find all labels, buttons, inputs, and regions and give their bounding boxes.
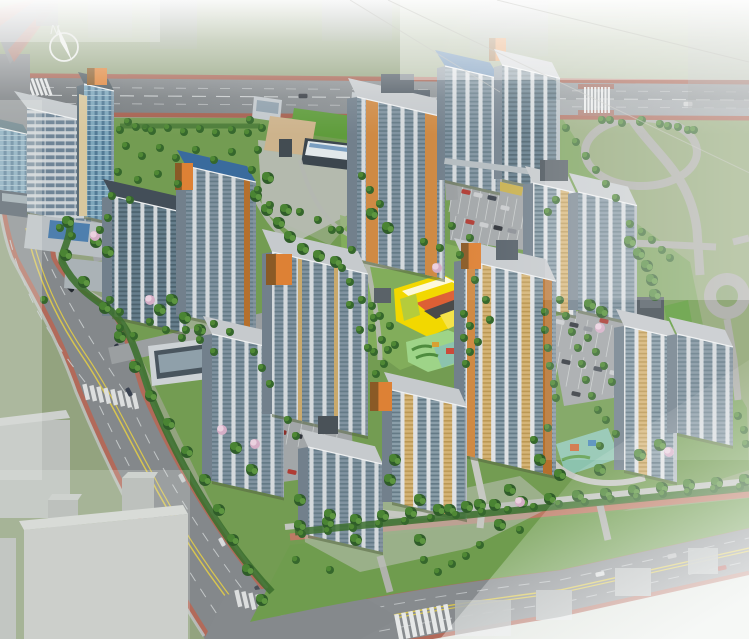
svg-text:N: N [50, 22, 60, 37]
